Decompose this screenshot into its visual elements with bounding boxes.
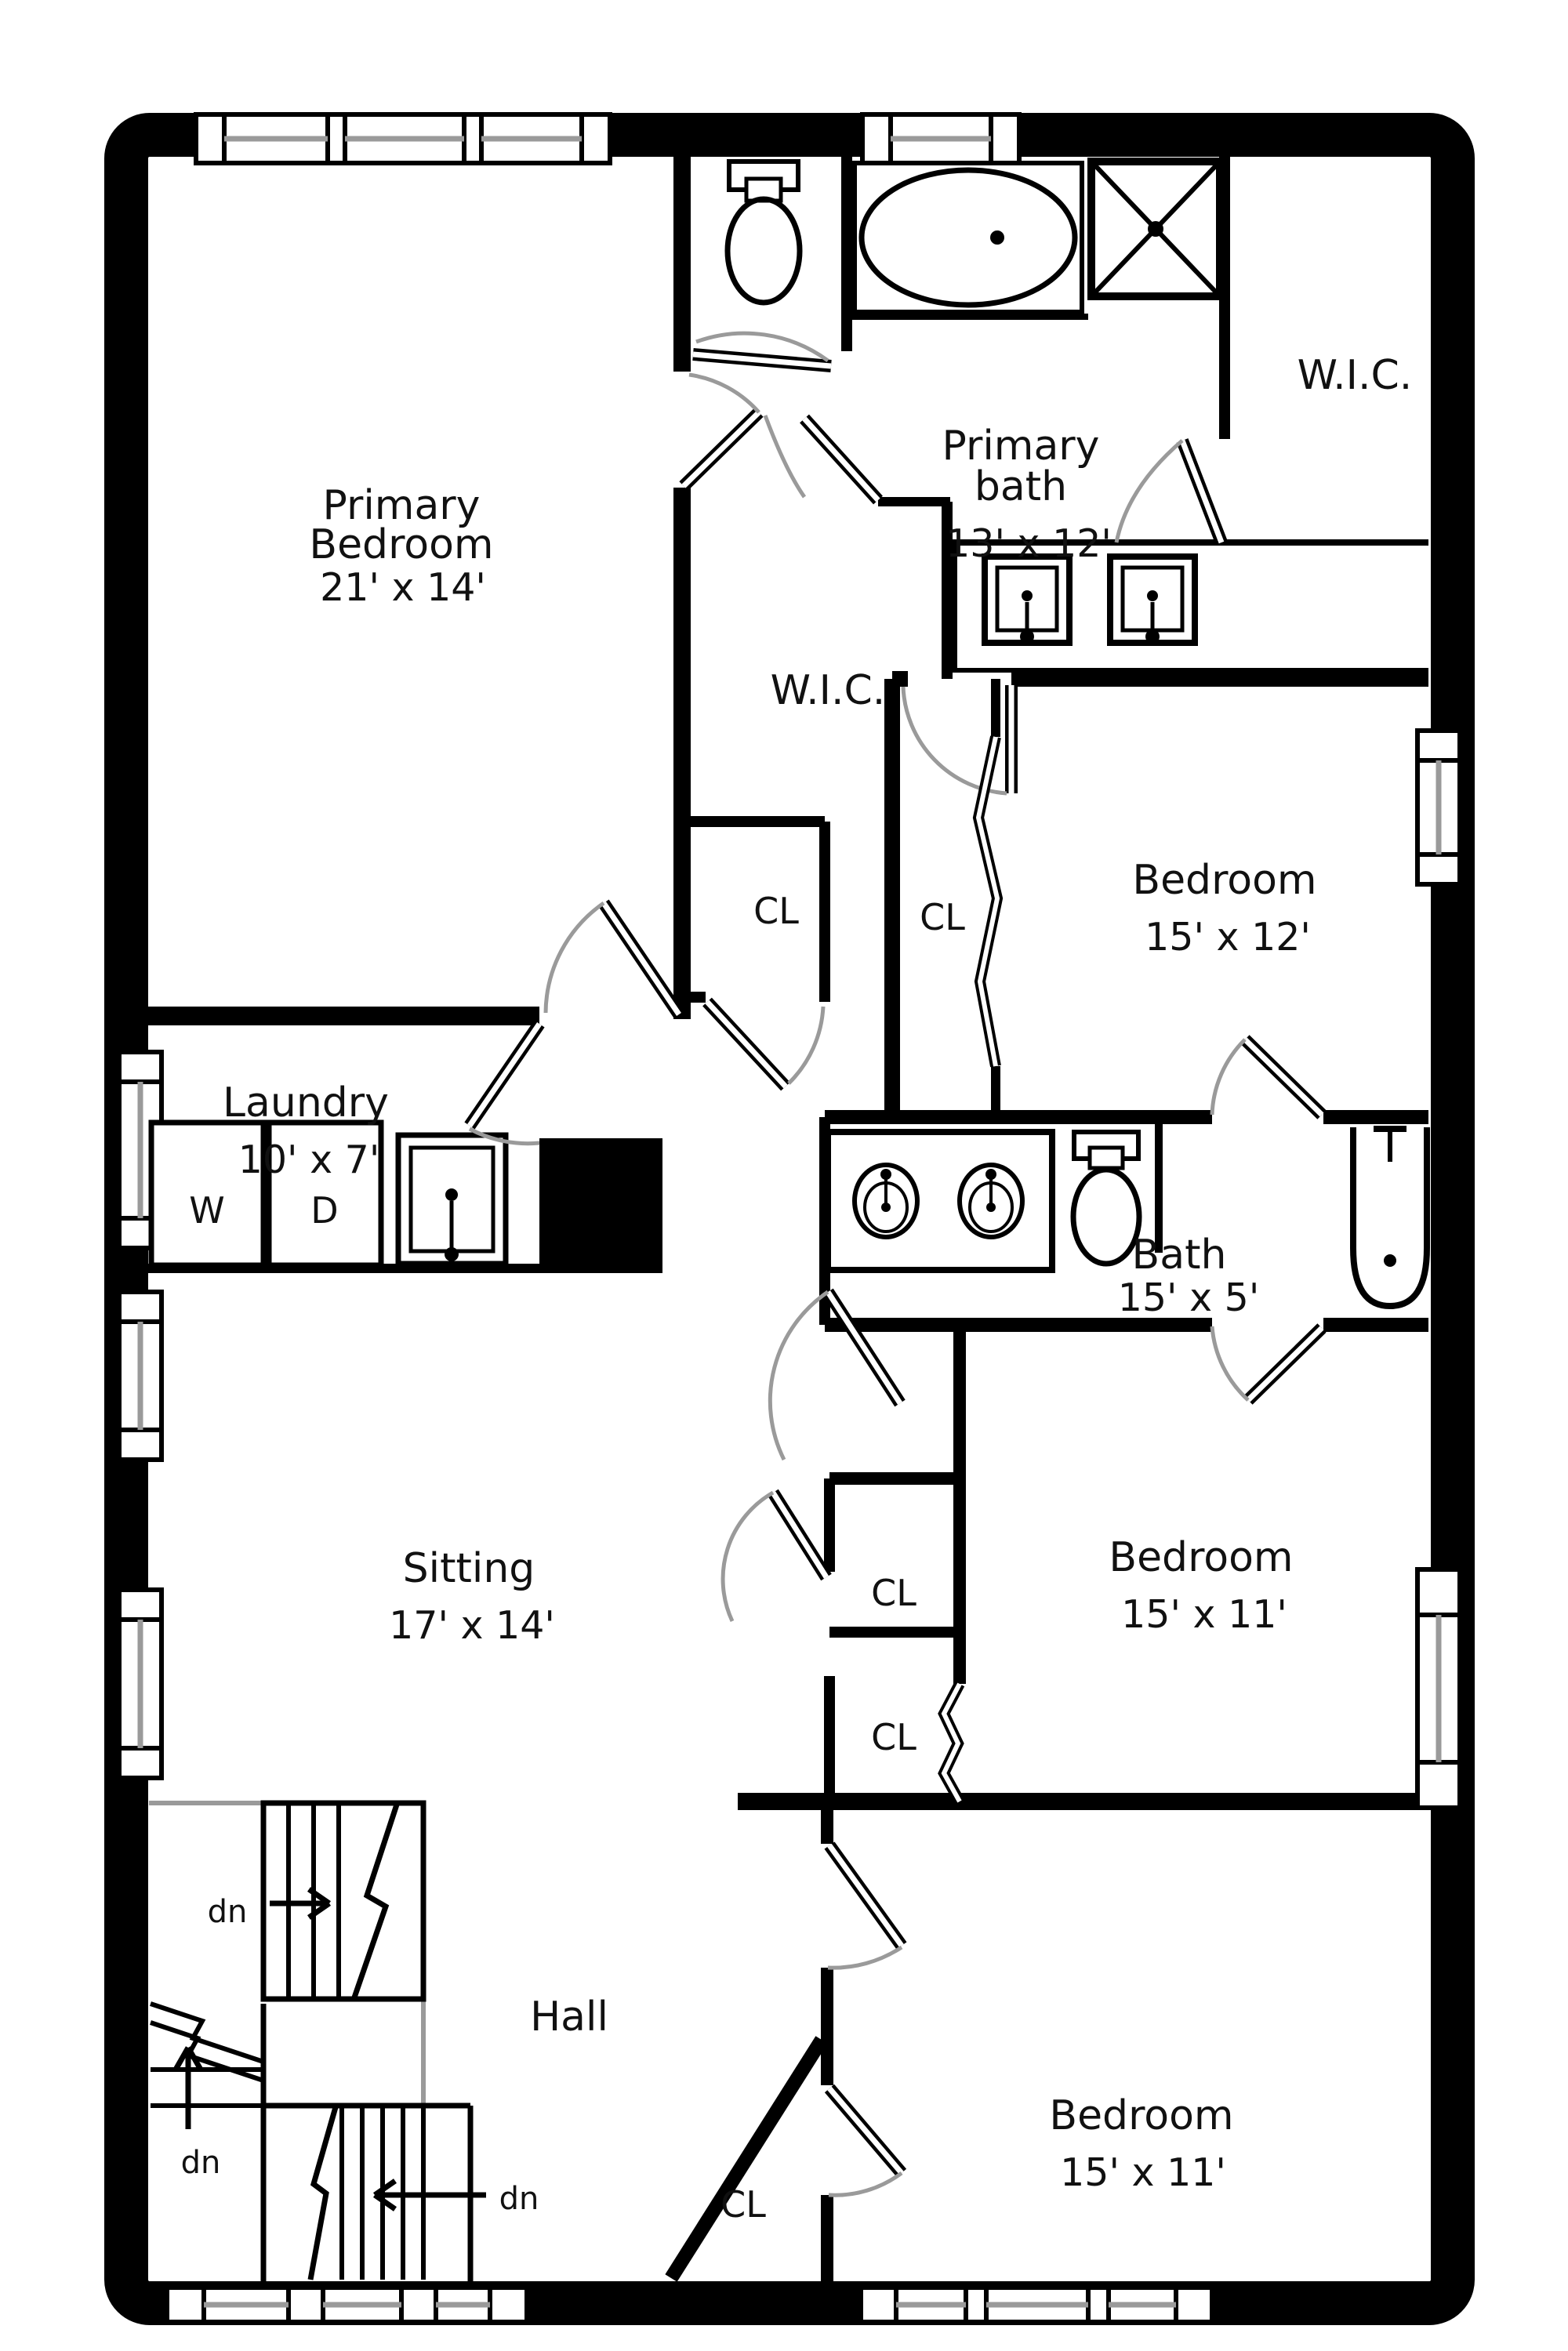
door-bath-bedroom12 <box>1212 1039 1322 1115</box>
window-left-sitting-lower <box>119 1590 162 1778</box>
door-wc <box>693 333 831 366</box>
window-left-sitting-upper <box>119 1292 162 1460</box>
chase-block <box>539 1138 662 1270</box>
sitting-label: Sitting <box>403 1545 535 1592</box>
wic-mid-label: W.I.C. <box>771 667 886 714</box>
fixtures <box>151 161 1427 1306</box>
door-primary-bedroom <box>684 375 759 486</box>
window-bottom-stair <box>167 2288 527 2322</box>
cl-mid-label: CL <box>753 890 799 932</box>
primary-bedroom-label-line2: Bedroom <box>309 521 493 568</box>
laundry-sink-icon <box>398 1135 506 1264</box>
shower-icon <box>1091 161 1220 296</box>
door-bath-bedroom11 <box>1212 1326 1322 1400</box>
primary-bath-dims: 13' x 12' <box>946 521 1112 566</box>
cl-sitting-lower-label: CL <box>871 1716 916 1758</box>
bedroom-bottom-dims: 15' x 11' <box>1060 2150 1226 2195</box>
window-right-bedroom12 <box>1417 731 1460 884</box>
bedroom12-dims: 15' x 12' <box>1145 915 1311 960</box>
bath-dims: 15' x 5' <box>1118 1275 1260 1320</box>
door-cl-mid <box>707 1002 823 1087</box>
primary-bedroom-dims: 21' x 14' <box>320 565 486 610</box>
door-cl-bottom <box>829 2088 902 2195</box>
window-bottom-bedroom <box>861 2288 1212 2322</box>
washer-label: W <box>189 1189 224 1232</box>
door-wic-mid <box>765 415 878 500</box>
laundry-label: Laundry <box>223 1079 389 1127</box>
staircase <box>149 1803 486 2281</box>
bedroom11-right-dims: 15' x 11' <box>1121 1592 1287 1637</box>
sitting-dims: 17' x 14' <box>389 1603 555 1648</box>
hall-label: Hall <box>530 1994 608 2041</box>
cl-bottom-label: CL <box>720 2183 766 2226</box>
dryer-label: D <box>310 1189 338 1232</box>
door-bedroom-bottom <box>828 1845 902 1968</box>
window-top-primary-bath <box>862 114 1019 163</box>
bifold-bedroom12-closet <box>978 737 997 1066</box>
bedroom11-right-label: Bedroom <box>1109 1534 1293 1581</box>
floor-plan-page: Primary Bedroom 21' x 14' Primary bath 1… <box>0 0 1568 2351</box>
bedroom12-label: Bedroom <box>1132 857 1316 904</box>
cl-sitting-upper-label: CL <box>871 1572 916 1614</box>
bedroom-bottom-label: Bedroom <box>1049 2092 1233 2139</box>
primary-bath-label-line2: bath <box>975 463 1067 510</box>
stairs-dn1-label: dn <box>208 1894 248 1930</box>
primary-bath-label-line1: Primary <box>942 423 1100 470</box>
vanity-hall-bath-icon <box>828 1132 1052 1270</box>
bathtub-primary-icon <box>855 163 1082 312</box>
floor-plan-svg: Primary Bedroom 21' x 14' Primary bath 1… <box>0 0 1568 2351</box>
door-laundry-upper-leaf <box>546 903 679 1014</box>
stairs-dn2-label: dn <box>181 2145 221 2181</box>
bathtub-hall-icon <box>1353 1126 1427 1306</box>
door-bath-hall <box>770 1292 900 1460</box>
laundry-dims: 10' x 7' <box>238 1137 380 1182</box>
bifold-cl-sitting-lower <box>944 1684 960 1801</box>
door-wic-right <box>1116 441 1221 542</box>
door-laundry-lower-leaf <box>470 1024 539 1144</box>
door-cl-sitting-upper <box>723 1493 826 1621</box>
window-top-primary-bedroom <box>196 114 610 163</box>
toilet-wc-icon <box>728 161 800 303</box>
stairs-dn3-label: dn <box>499 2181 539 2217</box>
cl-bedroom12-label: CL <box>920 896 965 938</box>
vanity-primary-icon <box>985 557 1195 644</box>
wic-right-label: W.I.C. <box>1298 352 1413 399</box>
bath-label: Bath <box>1132 1232 1227 1279</box>
window-right-bedroom11 <box>1417 1569 1460 1808</box>
room-labels: Primary Bedroom 21' x 14' Primary bath 1… <box>181 352 1413 2226</box>
toilet-hall-bath-icon <box>1073 1132 1139 1264</box>
